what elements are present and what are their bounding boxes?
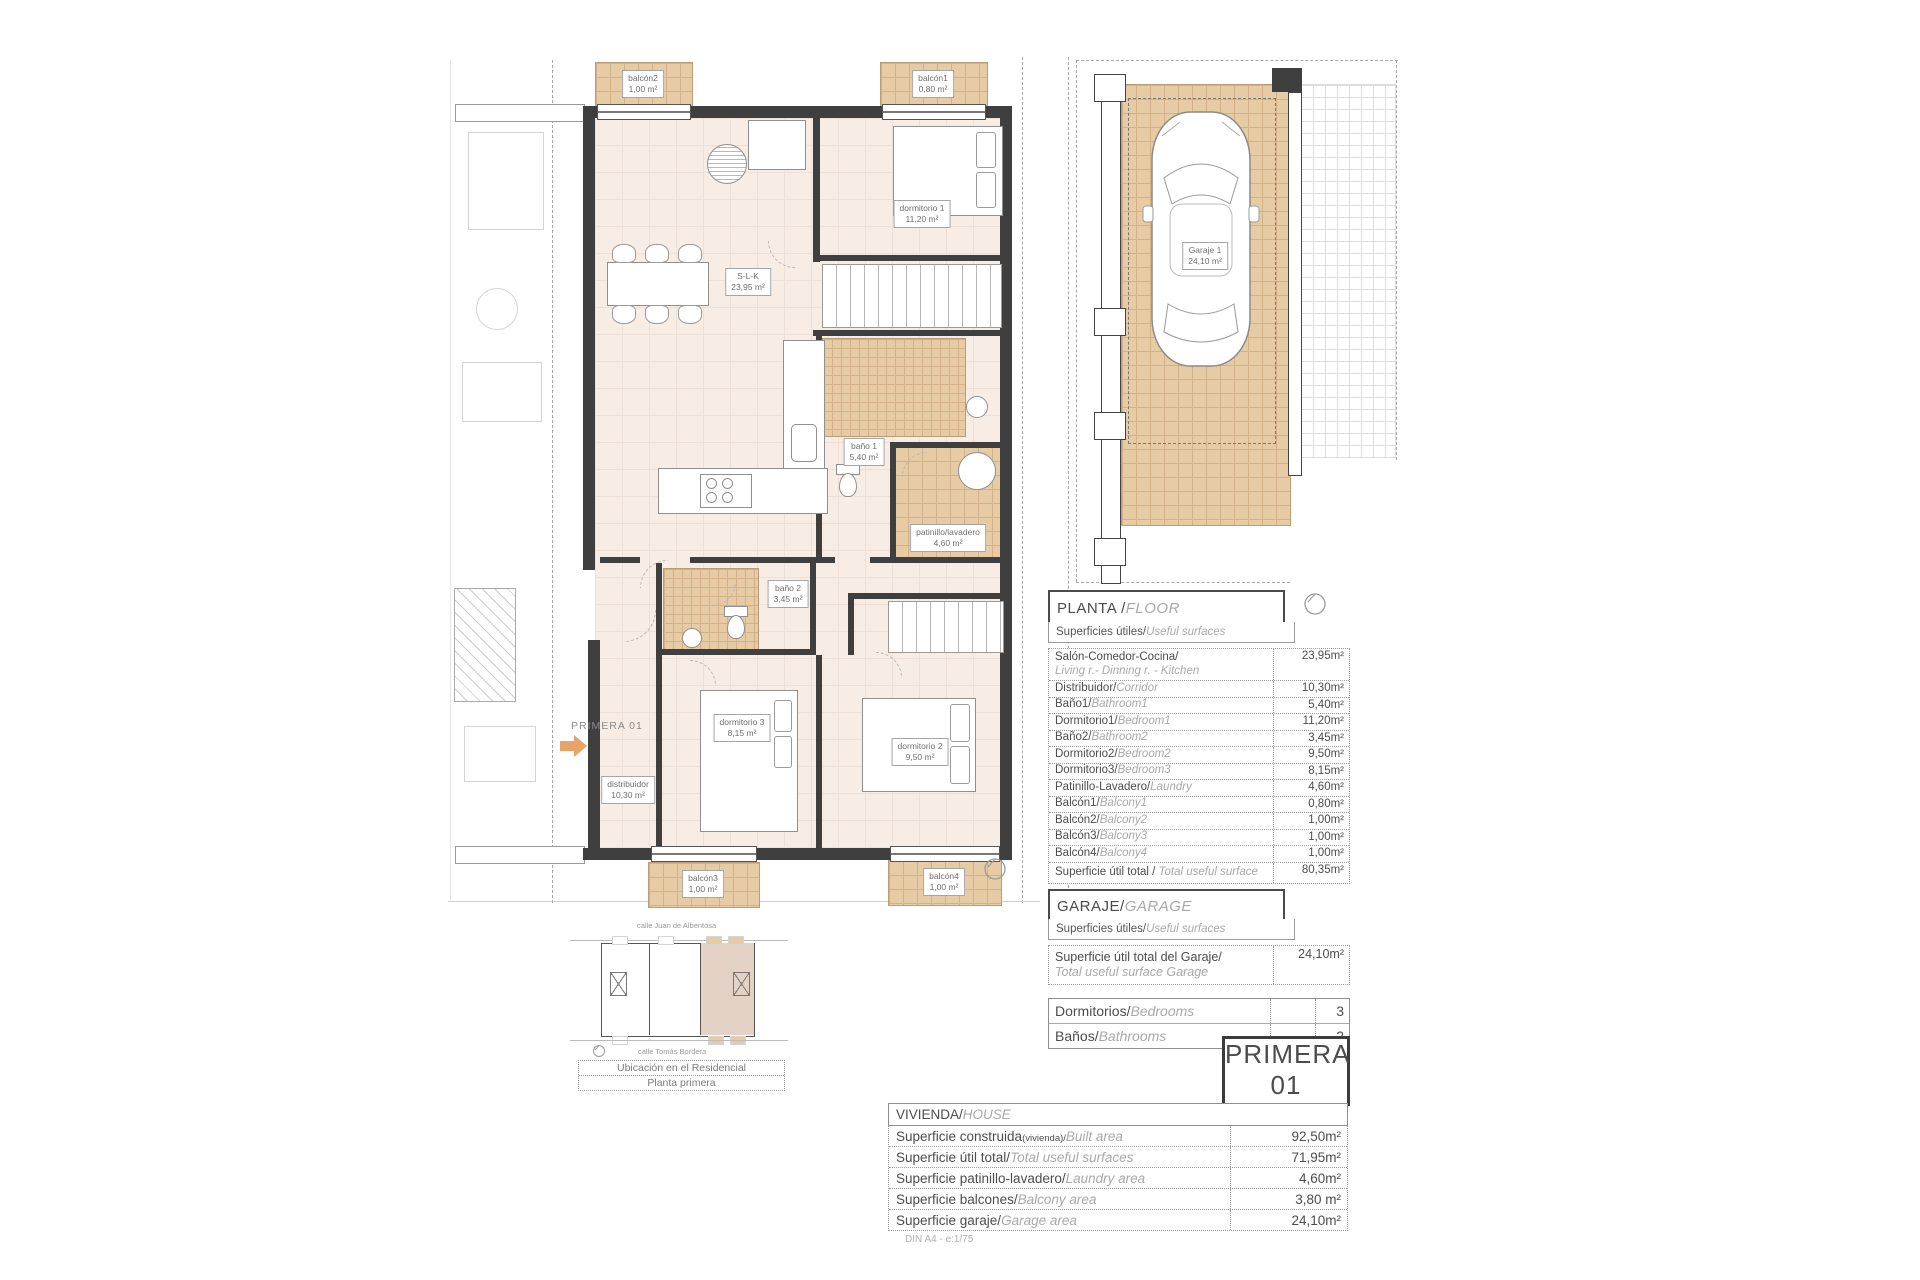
room-label-distribuidor: distribuidor10,30 m² xyxy=(601,776,655,804)
table-row: Patinillo-Lavadero/Laundry 4,60m² xyxy=(1049,780,1349,797)
property-line xyxy=(552,60,553,903)
entrance-arrow xyxy=(560,741,574,751)
table-row: Dormitorios/Bedrooms 3 xyxy=(1049,999,1349,1024)
room-label-balcon1: balcón10,80 m² xyxy=(912,70,954,98)
vivienda-rows: Superficie construida(vivienda)/Built ar… xyxy=(888,1126,1348,1231)
room-label-balcon2: balcón21,00 m² xyxy=(622,70,664,98)
room-label-patinillo: patinillo/lavadero4,60 m² xyxy=(910,524,986,552)
garaje-sub-en: Useful surfaces xyxy=(1146,923,1225,935)
neighbor-fixture xyxy=(464,726,536,782)
entrance-arrow-head xyxy=(574,735,587,757)
neighbor-fixture xyxy=(468,132,544,230)
sofa xyxy=(748,120,806,170)
wall-segment xyxy=(656,649,816,655)
garage-boundary xyxy=(1076,60,1077,582)
table-row: Salón-Comedor-Cocina/Living r.- Dinning … xyxy=(1049,649,1349,681)
table-row: Superficie garaje/Garage area 24,10m² xyxy=(889,1210,1347,1230)
washing-machine xyxy=(958,452,996,490)
garaje-sub-es: Superficies útiles/ xyxy=(1056,923,1146,935)
section-line xyxy=(1022,57,1023,903)
planta-sub-en: Useful surfaces xyxy=(1146,626,1225,638)
table-row: Balcón4/Balcony4 1,00m² xyxy=(1049,846,1349,863)
pillow xyxy=(950,704,970,742)
planta-table-header: PLANTA / FLOOR xyxy=(1048,590,1285,626)
site-caption-box: Ubicación en el Residencial Planta prime… xyxy=(578,1060,785,1091)
site-street-line xyxy=(570,1040,788,1041)
scale-note: DIN A4 - e:1/75 xyxy=(905,1234,973,1245)
table-row: Superficie útil total del Garaje/Total u… xyxy=(1049,946,1349,984)
table-row: Balcón2/Balcony2 1,00m² xyxy=(1049,813,1349,830)
washbasin xyxy=(682,628,702,648)
chair xyxy=(645,305,669,324)
wall-segment xyxy=(848,593,1005,599)
window xyxy=(882,104,986,120)
elevator-shaft xyxy=(454,588,516,702)
table-row: Superficie construida(vivienda)/Built ar… xyxy=(889,1126,1347,1147)
wall-segment xyxy=(656,655,662,848)
plan-sheet: balcón21,00 m² balcón10,80 m² dormitorio… xyxy=(0,0,1920,1280)
burner xyxy=(706,492,717,503)
site-caption-line1: Ubicación en el Residencial xyxy=(579,1061,784,1076)
neighbor-wall-band xyxy=(455,846,585,864)
garage-pilaster xyxy=(1094,538,1126,566)
table-row: Superficie útil total/Total useful surfa… xyxy=(889,1147,1347,1168)
table-row: Distribuidor/Corridor 10,30m² xyxy=(1049,681,1349,698)
street-name-top: calle Juan de Albentosa xyxy=(637,921,716,930)
site-caption-line2: Planta primera xyxy=(579,1076,784,1090)
unit-badge: PRIMERA 01 xyxy=(1222,1036,1350,1106)
room-label-dormitorio2: dormitorio 29,50 m² xyxy=(892,738,949,766)
planta-surfaces-table: Salón-Comedor-Cocina/Living r.- Dinning … xyxy=(1048,648,1350,884)
washbasin xyxy=(966,396,988,418)
site-tick xyxy=(612,936,628,945)
unit-entrance-label: PRIMERA 01 xyxy=(571,720,643,732)
table-row: Dormitorio3/Bedroom3 8,15m² xyxy=(1049,764,1349,781)
street-name-bottom: calle Tomás Bordera xyxy=(638,1047,706,1056)
garage-pilaster xyxy=(1094,412,1126,440)
wardrobe xyxy=(888,601,1004,653)
stairs-closet xyxy=(822,264,1002,328)
round-rug xyxy=(707,144,747,184)
site-street-line xyxy=(570,940,788,941)
table-row: Dormitorio2/Bedroom2 9,50m² xyxy=(1049,747,1349,764)
pillow xyxy=(774,736,792,768)
pillow xyxy=(976,132,996,168)
wall-segment xyxy=(816,655,822,848)
room-label-slk: S-L-K23,95 m² xyxy=(725,268,771,296)
wall-segment xyxy=(848,599,854,655)
unit-badge-line1: PRIMERA xyxy=(1225,1039,1347,1070)
unit-badge-line2: 01 xyxy=(1225,1070,1347,1101)
table-row: Baño2/Bathroom2 3,45m² xyxy=(1049,731,1349,748)
garaje-table-header: GARAJE/GARAGE xyxy=(1048,889,1285,923)
wall-segment xyxy=(588,640,600,860)
vivienda-header: VIVIENDA/HOUSE xyxy=(888,1103,1348,1126)
bath1-tile-floor xyxy=(822,338,966,437)
table-row: Balcón1/Balcony1 0,80m² xyxy=(1049,797,1349,814)
planta-sub-es: Superficies útiles/ xyxy=(1056,626,1146,638)
planta-title-es: PLANTA / xyxy=(1057,600,1126,617)
pillow xyxy=(950,746,970,784)
wall-segment xyxy=(890,442,1005,448)
car-icon xyxy=(1142,106,1260,374)
reference-circle-icon xyxy=(983,857,1007,881)
wall-segment xyxy=(813,330,1005,336)
wall-segment xyxy=(813,112,820,262)
toilet xyxy=(727,615,745,639)
planta-table-subheader: Superficies útiles/Useful surfaces xyxy=(1048,622,1295,643)
garage-pilaster xyxy=(1094,74,1126,102)
garaje-title-en: GARAGE xyxy=(1125,898,1192,915)
garage-pilaster xyxy=(1094,308,1126,336)
neighbor-edge-line xyxy=(450,60,451,903)
vivienda-table: VIVIENDA/HOUSE Superficie construida(viv… xyxy=(888,1103,1348,1231)
terrace-grid xyxy=(1300,84,1396,458)
room-label-balcon3: balcón31,00 m² xyxy=(682,870,724,898)
neighbor-fixture xyxy=(476,288,518,330)
table-row: Dormitorio1/Bedroom1 11,20m² xyxy=(1049,714,1349,731)
pillow xyxy=(774,700,792,732)
kitchen-sink xyxy=(791,424,817,462)
wall-segment xyxy=(600,557,640,563)
window xyxy=(651,846,757,862)
site-elevator-box xyxy=(610,972,627,996)
spacer-cell xyxy=(1270,999,1315,1023)
site-unit-divider xyxy=(649,943,650,1035)
garage-wall xyxy=(1288,92,1302,476)
chair xyxy=(612,244,636,263)
chair xyxy=(612,305,636,324)
site-tick xyxy=(658,936,674,945)
table-row: Baño1/Bathroom1 5,40m² xyxy=(1049,698,1349,715)
site-tick xyxy=(728,936,744,945)
chair xyxy=(678,305,702,324)
garaje-title-es: GARAJE/ xyxy=(1057,898,1125,915)
room-label-dormitorio3: dormitorio 38,15 m² xyxy=(714,714,771,742)
wall-segment xyxy=(583,106,595,570)
dining-table xyxy=(607,262,709,306)
garage-boundary xyxy=(1396,60,1397,460)
table-row: Superficie patinillo-lavadero/Laundry ar… xyxy=(889,1168,1347,1189)
table-row: Superficie balcones/Balcony area 3,80 m² xyxy=(889,1189,1347,1210)
planta-title-en: FLOOR xyxy=(1126,600,1180,617)
table-row: Balcón3/Balcony3 1,00m² xyxy=(1049,830,1349,847)
room-label-bano2: baño 23,45 m² xyxy=(768,580,809,608)
garaje-table-subheader: Superficies útiles/Useful surfaces xyxy=(1048,919,1295,940)
table-row-total: Superficie útil total / Total useful sur… xyxy=(1049,863,1349,883)
wall-segment xyxy=(890,446,896,558)
room-label-garaje: Garaje 124,10 m² xyxy=(1182,242,1228,270)
reference-circle-icon xyxy=(1303,592,1327,616)
wall-segment xyxy=(810,563,816,655)
neighbor-wall-band xyxy=(455,104,585,122)
toilet xyxy=(839,473,857,497)
site-circle-icon xyxy=(592,1044,606,1058)
window xyxy=(597,104,691,120)
room-label-dormitorio1: dormitorio 111,20 m² xyxy=(894,200,951,228)
neighbor-fixture xyxy=(462,362,542,422)
wall-segment xyxy=(813,255,1005,261)
chair xyxy=(678,244,702,263)
site-elevator-box xyxy=(733,972,750,996)
garage-pilaster-dark xyxy=(1272,68,1302,92)
room-label-balcon4: balcón41,00 m² xyxy=(923,868,965,896)
wall-segment xyxy=(1000,106,1012,860)
garage-boundary xyxy=(1076,60,1398,61)
burner xyxy=(706,478,717,489)
chair xyxy=(645,244,669,263)
room-label-bano1: baño 15,40 m² xyxy=(844,438,885,466)
burner xyxy=(722,492,733,503)
site-tick xyxy=(706,936,722,945)
garaje-surfaces-table: Superficie útil total del Garaje/Total u… xyxy=(1048,945,1350,985)
burner xyxy=(722,478,733,489)
pillow xyxy=(976,172,996,208)
